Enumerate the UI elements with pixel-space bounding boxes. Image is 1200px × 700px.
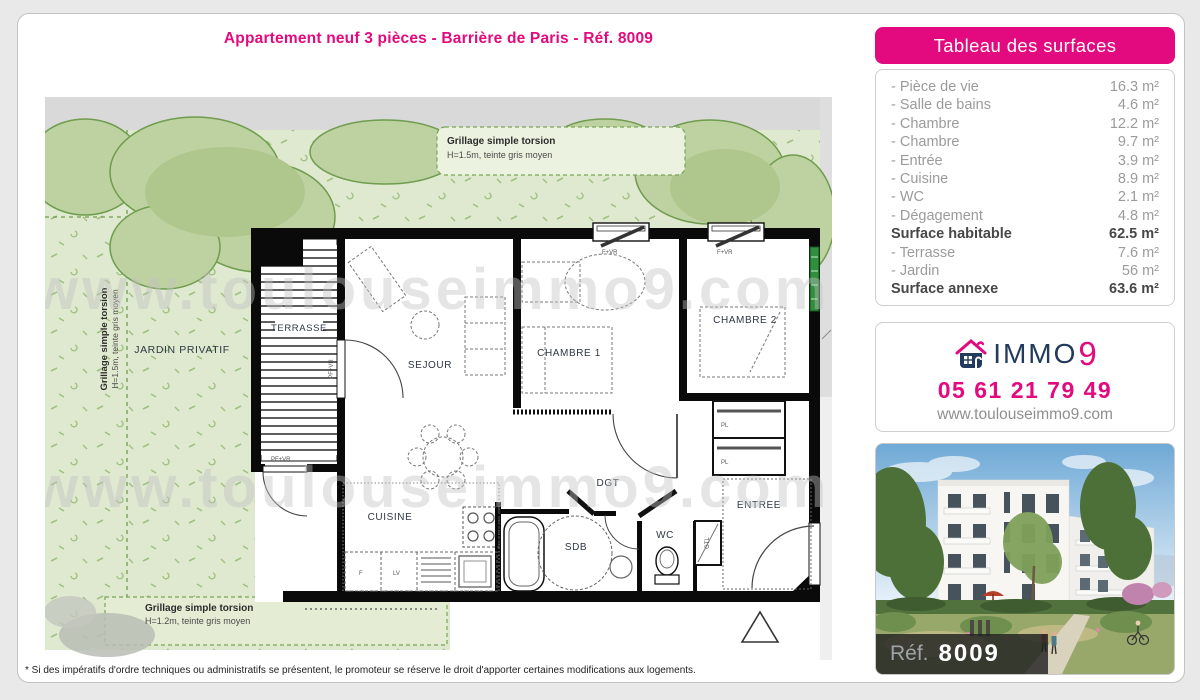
door-window-label: PF+VR — [329, 359, 335, 379]
legal-footnote: * Si des impératifs d'ordre techniques o… — [25, 665, 805, 676]
dishwasher-label: LV — [393, 571, 400, 577]
surfaces-header-label: Tableau des surfaces — [934, 35, 1117, 57]
surface-row-total-habitable: Surface habitable62.5 m² — [891, 225, 1159, 243]
closet-label: PL — [721, 423, 729, 429]
room-label-wc: WC — [656, 530, 674, 541]
watermark-text: www.toulouseimmo9.com — [45, 455, 830, 520]
surface-row: - Dégagement4.8 m² — [891, 207, 1159, 225]
fence-note-top: Grillage simple torsion H=1.5m, teinte g… — [437, 127, 685, 175]
window-label: F+VR — [717, 250, 733, 256]
brand-text: IMMO — [993, 338, 1077, 370]
floor-plan: Grillage simple torsion H=1.5m, teinte g… — [45, 97, 832, 660]
immo9-logo: IMMO9 — [953, 335, 1097, 373]
fridge-label: F — [359, 571, 363, 577]
ref-badge: Réf. 8009 — [876, 634, 1048, 674]
room-label-chambre1: CHAMBRE 1 — [537, 348, 601, 359]
ref-number: 8009 — [939, 640, 1000, 668]
room-label-sdb: SDB — [565, 542, 587, 553]
surface-row: - WC2.1 m² — [891, 188, 1159, 206]
room-label-terrasse: TERRASSE — [271, 323, 327, 334]
ref-prefix-label: Réf. — [890, 642, 929, 666]
building-photo: Réf. 8009 — [875, 443, 1175, 675]
room-label-jardin: JARDIN PRIVATIF — [134, 344, 230, 356]
fence-top-line2: H=1.5m, teinte gris moyen — [447, 150, 552, 160]
website-url: www.toulouseimmo9.com — [937, 406, 1113, 424]
surface-row-total-annexe: Surface annexe63.6 m² — [891, 280, 1159, 298]
fence-top-line1: Grillage simple torsion — [447, 136, 555, 147]
contact-card: IMMO9 05 61 21 79 49 www.toulouseimmo9.c… — [875, 322, 1175, 432]
house-icon — [953, 338, 989, 370]
surface-row: - Pièce de vie16.3 m² — [891, 78, 1159, 96]
phone-number: 05 61 21 79 49 — [938, 377, 1112, 404]
brand-digit: 9 — [1078, 335, 1096, 373]
surface-row: - Salle de bains4.6 m² — [891, 96, 1159, 114]
surfaces-panel-header: Tableau des surfaces — [875, 27, 1175, 64]
surface-row: - Cuisine8.9 m² — [891, 170, 1159, 188]
surfaces-table: - Pièce de vie16.3 m² - Salle de bains4.… — [875, 69, 1175, 306]
surface-row: - Chambre9.7 m² — [891, 133, 1159, 151]
surface-row: - Terrasse7.6 m² — [891, 244, 1159, 262]
watermark-text: www.toulouseimmo9.com — [45, 257, 830, 322]
surface-row: - Chambre12.2 m² — [891, 115, 1159, 133]
surface-row: - Jardin56 m² — [891, 262, 1159, 280]
room-label-sejour: SEJOUR — [408, 360, 452, 371]
gtl-closet: GTL — [695, 521, 721, 565]
surface-row: - Entrée3.9 m² — [891, 152, 1159, 170]
gtl-label: GTL — [705, 537, 711, 549]
fence-bottom-line2: H=1.2m, teinte gris moyen — [145, 616, 250, 626]
fence-bottom-line1: Grillage simple torsion — [145, 603, 253, 614]
page-title: Appartement neuf 3 pièces - Barrière de … — [45, 30, 832, 48]
